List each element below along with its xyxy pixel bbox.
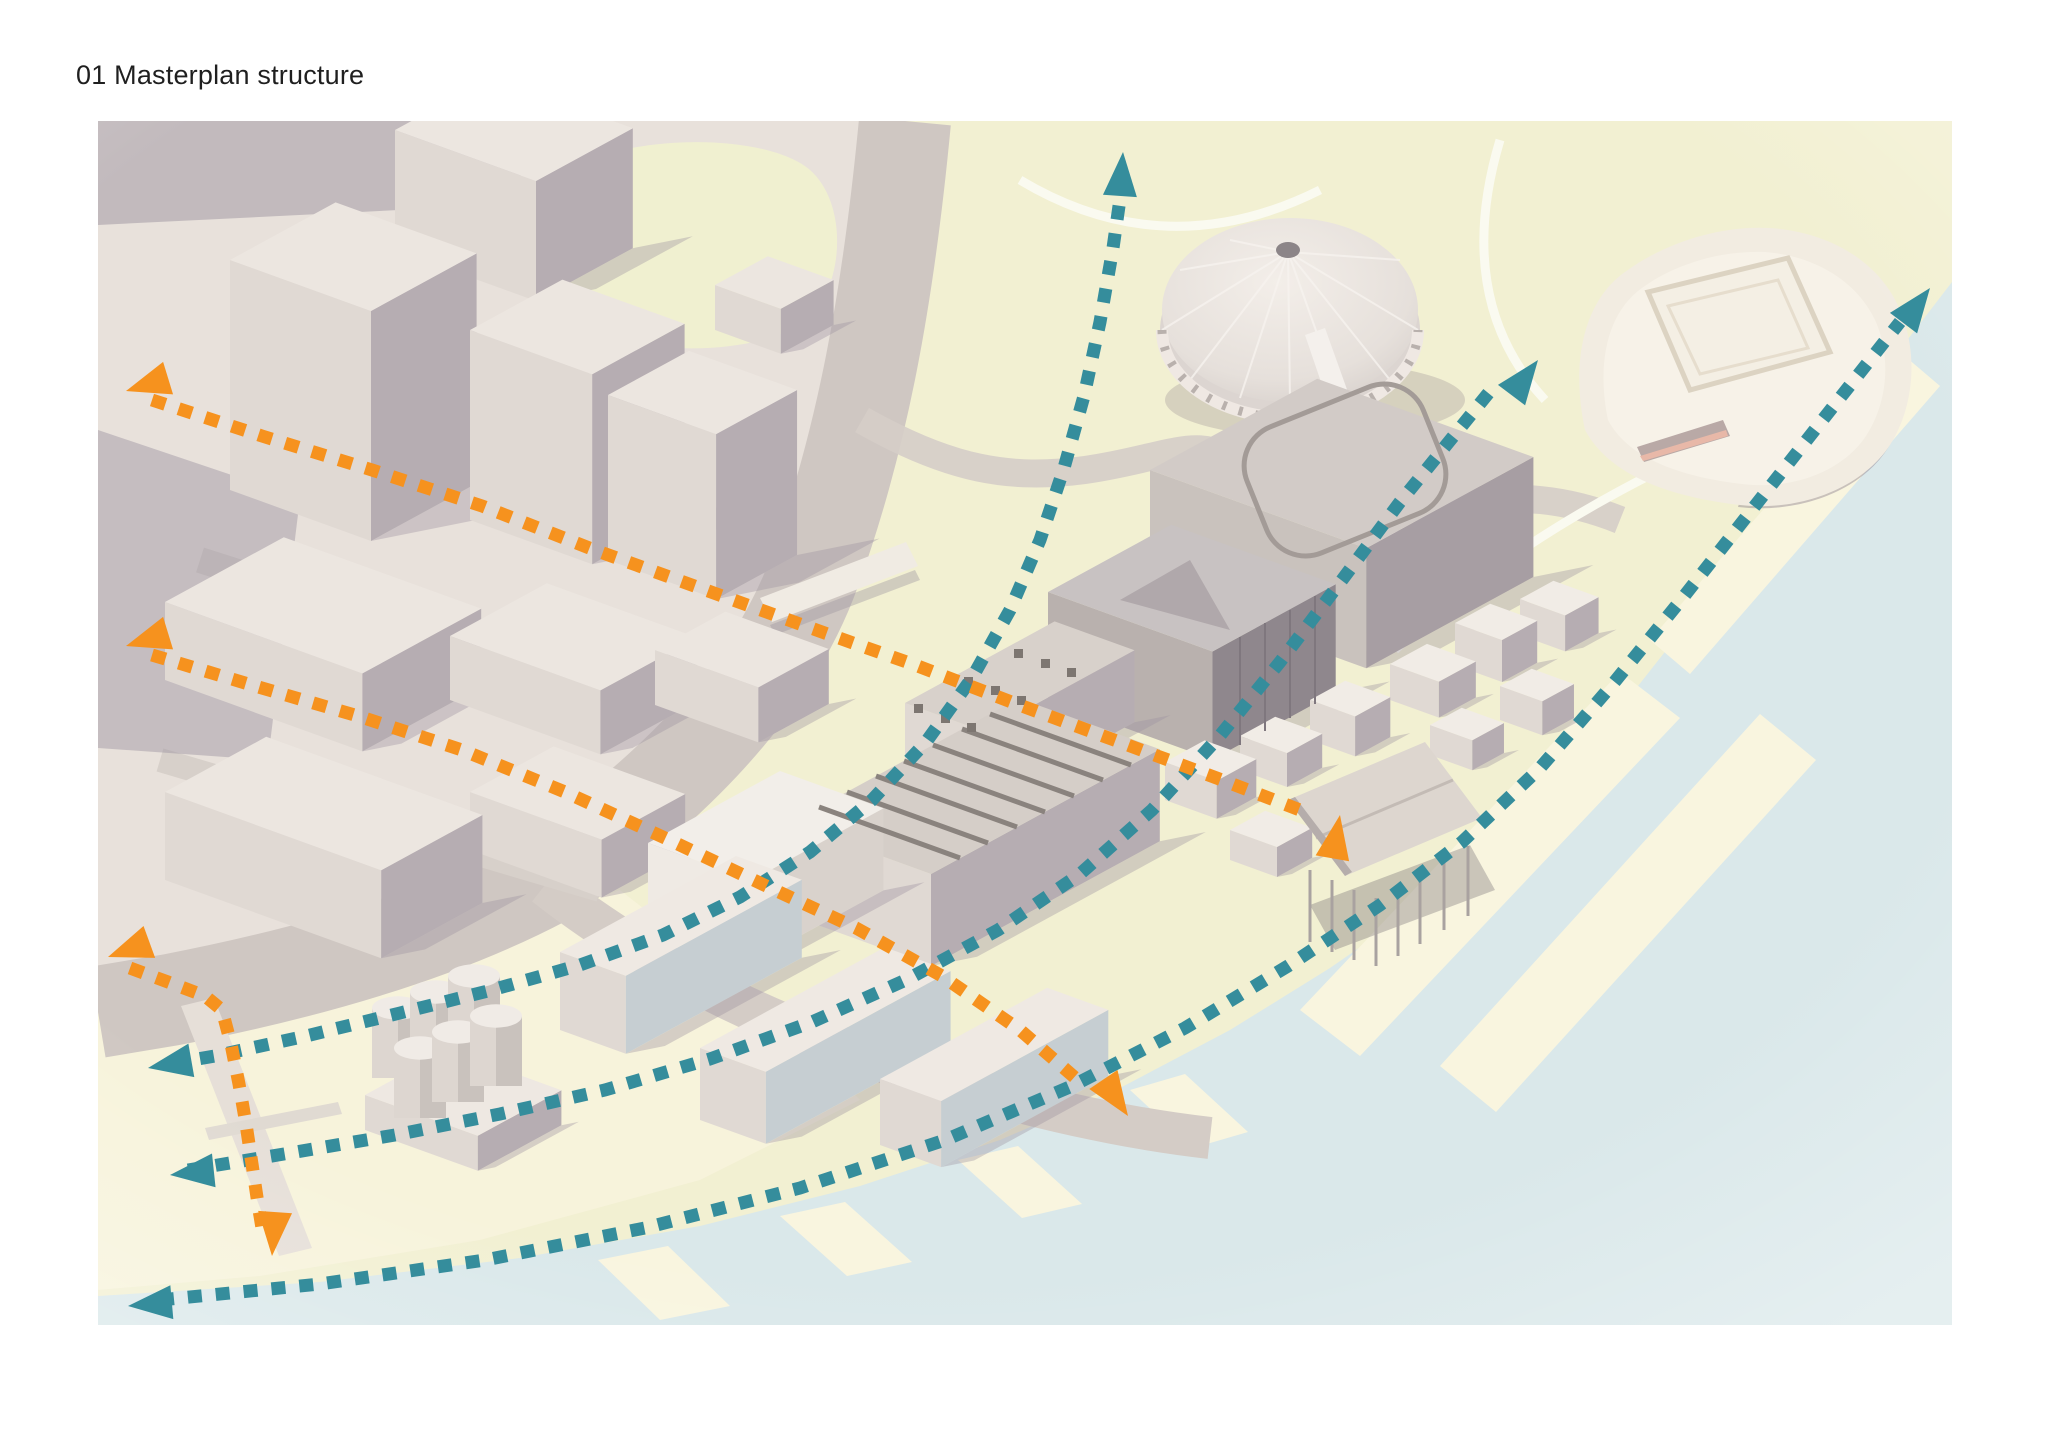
masterplan-render bbox=[98, 121, 1952, 1325]
masterplan-figure bbox=[98, 121, 1952, 1325]
page-title: 01 Masterplan structure bbox=[76, 60, 364, 90]
